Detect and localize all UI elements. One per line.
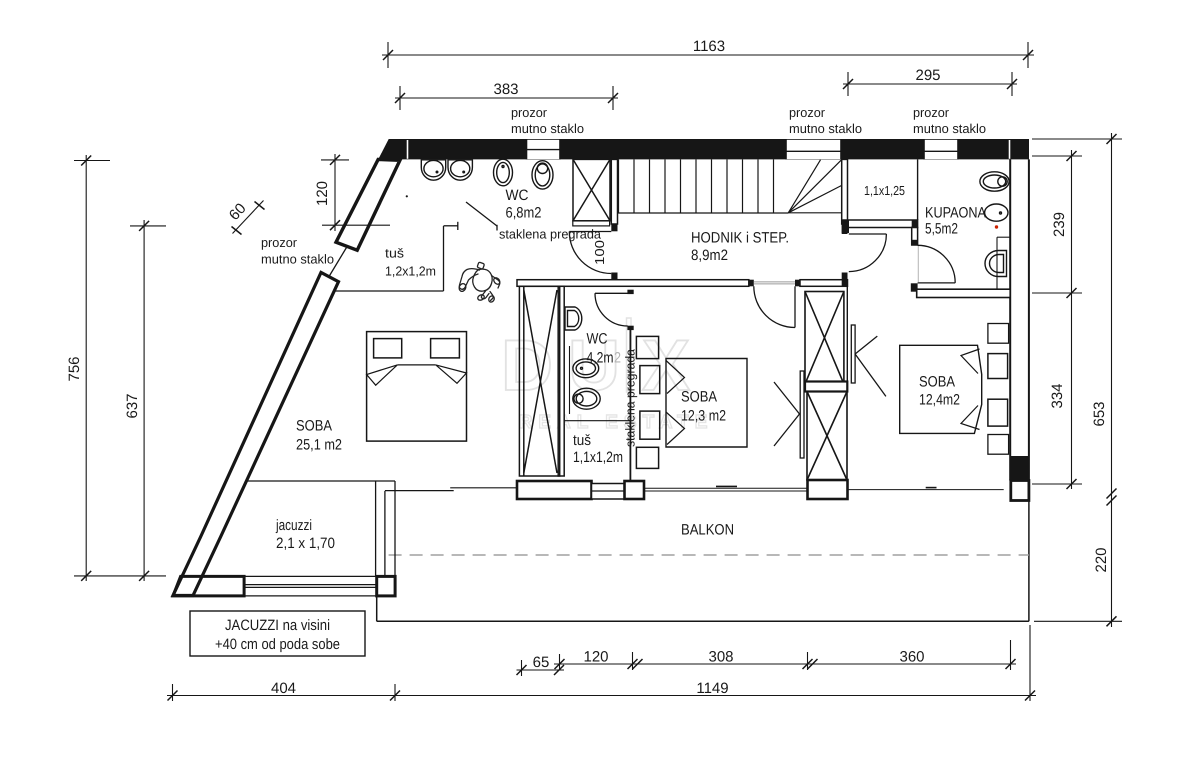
svg-text:SOBA: SOBA xyxy=(681,389,717,406)
svg-text:100: 100 xyxy=(592,240,607,265)
svg-text:2: 2 xyxy=(614,350,621,367)
svg-text:220: 220 xyxy=(1093,547,1110,572)
svg-text:239: 239 xyxy=(1051,212,1068,237)
svg-text:295: 295 xyxy=(915,67,940,84)
svg-text:prozor: prozor xyxy=(913,105,950,120)
svg-text:4,2m: 4,2m xyxy=(587,350,614,367)
svg-text:tuš: tuš xyxy=(385,246,405,261)
svg-text:383: 383 xyxy=(493,81,518,98)
svg-text:120: 120 xyxy=(314,181,331,206)
svg-text:mutno staklo: mutno staklo xyxy=(789,121,862,136)
svg-text:D: D xyxy=(501,326,553,406)
svg-text:mutno staklo: mutno staklo xyxy=(511,121,584,136)
svg-text:KUPAONA: KUPAONA xyxy=(925,205,986,222)
svg-text:653: 653 xyxy=(1091,401,1108,426)
svg-text:2,1 x 1,70: 2,1 x 1,70 xyxy=(276,535,335,552)
svg-text:1,1x1,2m: 1,1x1,2m xyxy=(573,449,623,466)
svg-text:65: 65 xyxy=(533,654,550,671)
svg-text:staklena pregrada: staklena pregrada xyxy=(623,348,638,447)
svg-text:360: 360 xyxy=(899,649,924,666)
svg-text:8,9m2: 8,9m2 xyxy=(691,247,728,264)
svg-text:SOBA: SOBA xyxy=(919,374,955,391)
svg-text:308: 308 xyxy=(708,649,733,666)
svg-text:1,1x1,25: 1,1x1,25 xyxy=(864,183,905,198)
svg-text:SOBA: SOBA xyxy=(296,418,332,435)
svg-text:5,5m2: 5,5m2 xyxy=(925,221,958,238)
svg-text:prozor: prozor xyxy=(789,105,826,120)
svg-text:1163: 1163 xyxy=(693,38,725,55)
svg-text:1149: 1149 xyxy=(696,680,728,697)
svg-text:WC: WC xyxy=(506,187,529,204)
svg-text:334: 334 xyxy=(1049,383,1066,408)
svg-text:12,3 m2: 12,3 m2 xyxy=(681,408,726,425)
svg-text:25,1 m2: 25,1 m2 xyxy=(296,437,342,454)
svg-text:jacuzzi: jacuzzi xyxy=(275,517,312,534)
svg-text:staklena pregrada: staklena pregrada xyxy=(499,227,602,242)
svg-text:HODNIK i STEP.: HODNIK i STEP. xyxy=(691,230,789,247)
svg-text:12,4m2: 12,4m2 xyxy=(919,392,960,409)
svg-text:prozor: prozor xyxy=(261,235,298,250)
svg-text:120: 120 xyxy=(583,649,608,666)
svg-text:tuš: tuš xyxy=(573,432,591,449)
svg-text:JACUZZI na visini: JACUZZI na visini xyxy=(225,617,330,634)
svg-text:BALKON: BALKON xyxy=(681,522,734,539)
svg-text:1,2x1,2m: 1,2x1,2m xyxy=(385,264,436,279)
svg-text:+40 cm od poda sobe: +40 cm od poda sobe xyxy=(215,636,340,653)
svg-text:WC: WC xyxy=(587,331,608,348)
svg-text:mutno staklo: mutno staklo xyxy=(261,252,334,267)
svg-text:404: 404 xyxy=(271,680,296,697)
svg-text:6,8m2: 6,8m2 xyxy=(506,205,542,222)
svg-text:prozor: prozor xyxy=(511,105,548,120)
svg-text:mutno staklo: mutno staklo xyxy=(913,121,986,136)
svg-text:756: 756 xyxy=(66,356,83,381)
svg-text:637: 637 xyxy=(124,393,141,418)
